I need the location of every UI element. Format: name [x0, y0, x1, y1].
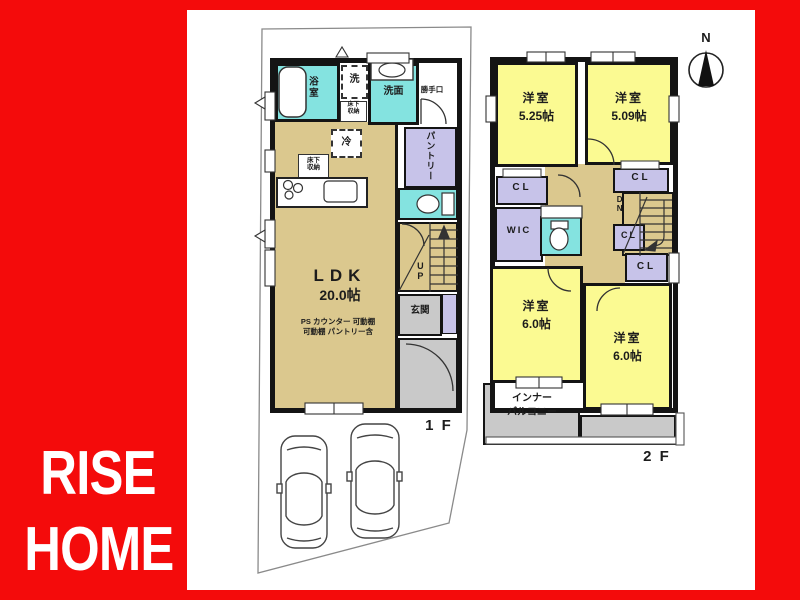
bedroom4-name-label: 洋室	[583, 332, 672, 346]
ldk-size-label: 20.0帖	[295, 287, 385, 303]
bedroom2-name-label: 洋室	[585, 92, 673, 106]
bedroom4-size-label: 6.0帖	[583, 350, 672, 364]
windows-1f	[255, 47, 409, 414]
brand-line2: HOME	[24, 514, 172, 585]
backdoor-label: 勝手口	[413, 86, 451, 95]
pantry-label: パントリー	[425, 131, 435, 181]
floor2-label: 2 F	[632, 448, 682, 465]
underfloor-storage-label-2: 床下 収納	[298, 157, 329, 172]
closet1-label: CL	[496, 182, 548, 194]
bedroom3-size-label: 6.0帖	[490, 318, 583, 332]
toilet-1f-icon	[417, 193, 454, 215]
bathtub-icon	[279, 67, 306, 117]
bedroom2-size-label: 5.09帖	[585, 110, 673, 124]
bedroom1-name-label: 洋室	[495, 92, 578, 106]
car-icon-2	[347, 424, 402, 538]
underfloor-storage-label-1: 床下 収納	[340, 102, 367, 116]
balcony-label-line2: バルコニー	[482, 407, 582, 419]
wic-label: WIC	[495, 226, 543, 237]
closet2-label: CL	[613, 172, 669, 184]
fridge-label: 冷	[331, 137, 362, 149]
car-icon-1	[277, 436, 331, 548]
compass-north-label: N	[692, 31, 720, 46]
stove-sink-icons	[284, 181, 358, 203]
compass-icon	[689, 50, 723, 87]
closet4-label: CL	[625, 261, 668, 273]
brand-line1: RISE	[24, 438, 172, 509]
laundry-label: 洗	[341, 74, 368, 86]
stairs-1f-treads	[399, 222, 458, 292]
floorplan-advert: 浴室 洗 床下 収納 洗面 勝手口 パントリー 冷 床下 収納 LDK 20.0…	[0, 0, 800, 600]
entrance-label: 玄関	[398, 306, 442, 317]
bath-label: 浴室	[306, 76, 317, 99]
ldk-name-label: LDK	[295, 266, 385, 286]
ldk-note2-label: 可動棚 パントリー含	[272, 328, 404, 337]
stairs-2f-treads	[623, 192, 672, 256]
bedroom3-name-label: 洋室	[490, 300, 583, 314]
balcony-label-line1: インナー	[486, 393, 578, 405]
toilet-2f-icon	[541, 206, 582, 250]
stairs-down-label: DN	[615, 195, 624, 213]
ldk-note1-label: PS カウンター 可動棚	[272, 318, 404, 327]
stairs-up-label: UP	[415, 261, 425, 281]
floor1-label: 1 F	[414, 417, 464, 434]
bedroom1-size-label: 5.25帖	[495, 110, 578, 124]
closet3-label: CL	[613, 230, 645, 240]
washroom-label: 洗面	[368, 86, 419, 98]
